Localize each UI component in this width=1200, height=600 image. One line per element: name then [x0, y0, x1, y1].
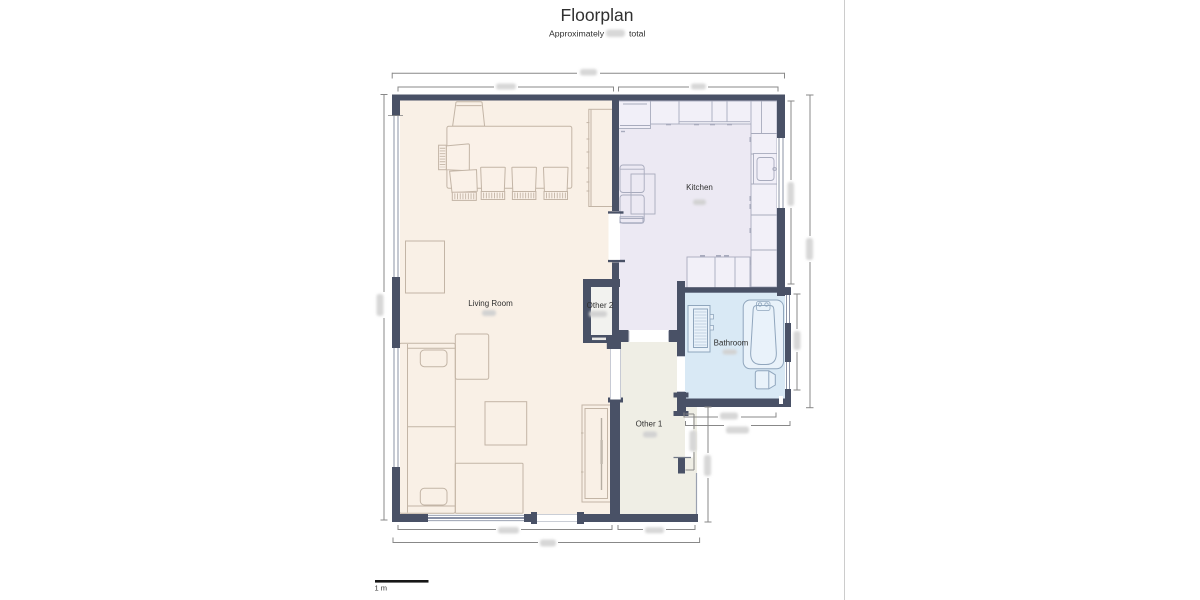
- svg-text:Other 1: Other 1: [636, 420, 663, 429]
- svg-text:1 m: 1 m: [375, 584, 388, 593]
- svg-text:Kitchen: Kitchen: [686, 183, 713, 192]
- svg-text:total: total: [629, 29, 645, 39]
- svg-text:Floorplan: Floorplan: [561, 5, 634, 25]
- svg-text:Other 2: Other 2: [587, 301, 614, 310]
- svg-text:Approximately: Approximately: [549, 29, 605, 39]
- svg-text:Bathroom: Bathroom: [714, 339, 749, 348]
- svg-text:Living Room: Living Room: [468, 299, 513, 308]
